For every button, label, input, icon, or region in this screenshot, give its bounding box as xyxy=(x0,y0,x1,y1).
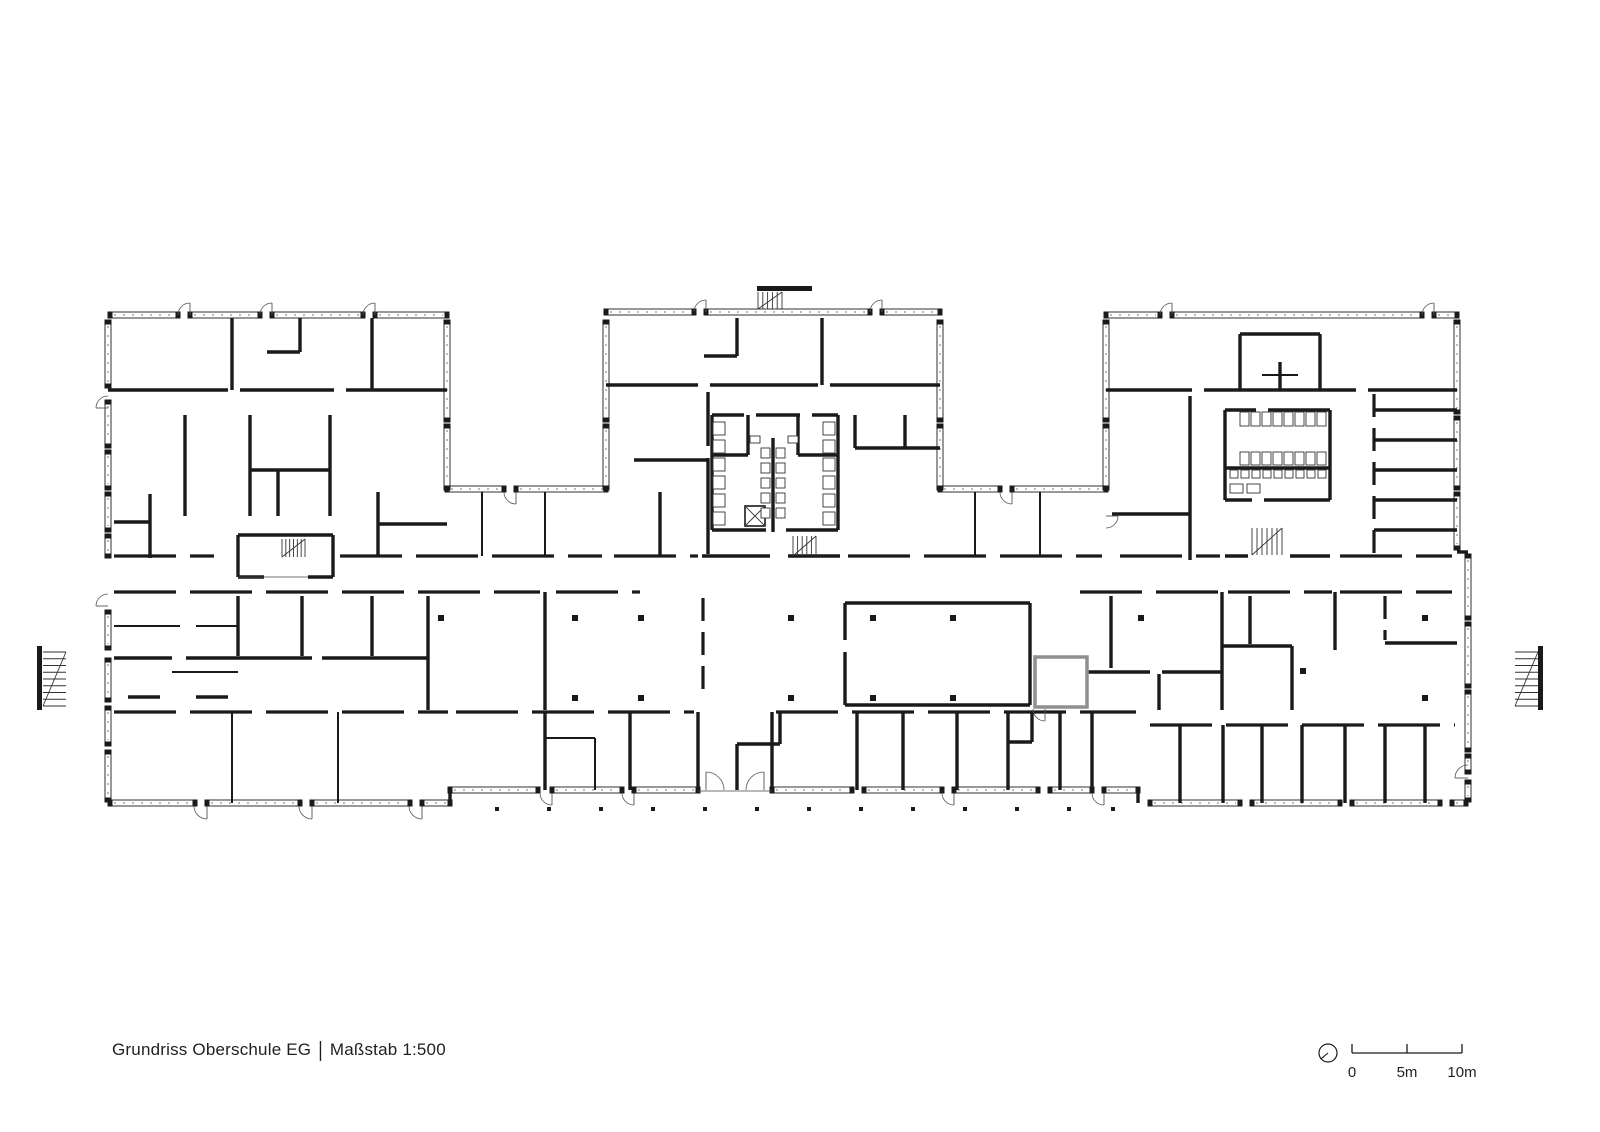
facade-pier xyxy=(105,646,112,651)
title-block: Grundriss Oberschule EG|Maßstab 1:500 xyxy=(112,1040,446,1060)
window-band xyxy=(1434,312,1457,318)
facade-pier xyxy=(105,384,112,389)
facade-pier xyxy=(514,486,519,493)
window-band xyxy=(110,312,178,318)
door-swing-arc xyxy=(746,772,764,790)
wc-fixture xyxy=(1241,470,1249,478)
column xyxy=(1138,615,1144,621)
wc-fixture xyxy=(750,436,760,443)
facade-pier xyxy=(620,787,625,794)
column xyxy=(572,695,578,701)
wc-fixture xyxy=(776,463,785,473)
wc-fixture xyxy=(776,508,785,518)
drawing-title: Grundriss Oberschule EG xyxy=(112,1040,311,1059)
wc-fixture xyxy=(761,493,770,503)
floor-plan-drawing xyxy=(0,0,1600,1132)
wc-fixture xyxy=(713,422,725,435)
window-band xyxy=(110,800,195,806)
facade-pier xyxy=(502,486,507,493)
column xyxy=(638,615,644,621)
facade-pier xyxy=(105,492,112,497)
facade-pier xyxy=(1465,780,1472,785)
wc-fixture xyxy=(776,448,785,458)
facade-pier xyxy=(108,312,113,319)
wc-fixture xyxy=(713,476,725,489)
facade-pier xyxy=(105,400,112,405)
facade-pier xyxy=(1465,616,1472,621)
facade-pier xyxy=(105,534,112,539)
wc-fixture xyxy=(1318,470,1326,478)
wc-fixture xyxy=(1284,452,1293,465)
wc-fixture xyxy=(761,448,770,458)
window-band xyxy=(1454,494,1460,548)
wc-fixture xyxy=(1317,452,1326,465)
column xyxy=(438,615,444,621)
facade-pier xyxy=(603,320,610,325)
facade-pier xyxy=(850,787,855,794)
wc-fixture xyxy=(1247,484,1260,493)
canopy-column xyxy=(495,807,499,811)
facade-pier xyxy=(1010,486,1015,493)
facade-pier xyxy=(1438,800,1443,807)
wc-fixture xyxy=(1262,452,1271,465)
wc-fixture xyxy=(1240,452,1249,465)
scale-label-10m: 10m xyxy=(1447,1064,1476,1081)
wc-fixture xyxy=(1296,470,1304,478)
facade-pier xyxy=(444,424,451,429)
facade-pier xyxy=(1048,787,1053,794)
facade-pier xyxy=(105,444,112,449)
wc-fixture xyxy=(761,463,770,473)
facade-pier xyxy=(1250,800,1255,807)
canopy-column xyxy=(963,807,967,811)
facade-pier xyxy=(1454,416,1461,421)
wc-fixture xyxy=(1230,470,1238,478)
wc-fixture xyxy=(713,512,725,525)
door-swing-arc xyxy=(1092,793,1104,805)
door-swing-arc xyxy=(1000,492,1012,504)
door-swing-arc xyxy=(622,793,634,805)
window-band xyxy=(447,486,504,492)
facade-pier xyxy=(603,486,610,491)
wc-fixture xyxy=(761,508,770,518)
facade-pier xyxy=(1465,684,1472,689)
door-swing-arc xyxy=(1106,516,1118,528)
column xyxy=(950,615,956,621)
wc-fixture xyxy=(776,478,785,488)
facade-pier xyxy=(632,787,637,794)
floor-plan-page: Grundriss Oberschule EG|Maßstab 1:500 0 … xyxy=(0,0,1600,1132)
canopy-column xyxy=(1015,807,1019,811)
wc-fixture xyxy=(823,512,835,525)
canopy-column xyxy=(1067,807,1071,811)
column xyxy=(1422,615,1428,621)
window-band xyxy=(1050,787,1092,793)
facade-pier xyxy=(1454,492,1461,497)
facade-pier xyxy=(1465,554,1472,559)
facade-pier xyxy=(105,450,112,455)
wc-fixture xyxy=(823,476,835,489)
wc-fixture xyxy=(823,458,835,471)
facade-pier xyxy=(1454,486,1461,491)
column xyxy=(572,615,578,621)
wc-fixture xyxy=(1306,452,1315,465)
stair-landing-bar xyxy=(757,286,812,291)
facade-pier xyxy=(1455,312,1460,319)
wc-fixture xyxy=(713,494,725,507)
door-swing-arc xyxy=(194,806,207,819)
facade-pier xyxy=(105,698,112,703)
wc-fixture xyxy=(1306,412,1315,426)
facade-pier xyxy=(105,798,112,803)
facade-pier xyxy=(1338,800,1343,807)
facade-pier xyxy=(550,787,555,794)
facade-pier xyxy=(603,424,610,429)
wc-fixture xyxy=(1285,470,1293,478)
scale-label-0: 0 xyxy=(1348,1064,1356,1081)
canopy-column xyxy=(651,807,655,811)
facade-pier xyxy=(1465,690,1472,695)
wall-layer xyxy=(108,318,1468,806)
facade-pier xyxy=(1350,800,1355,807)
facade-pier xyxy=(1102,787,1107,794)
stair-diagonal xyxy=(793,536,816,556)
wc-fixture xyxy=(1273,412,1282,426)
facade-pier xyxy=(105,486,112,491)
canopy-column xyxy=(547,807,551,811)
facade-pier xyxy=(940,787,945,794)
canopy-column xyxy=(859,807,863,811)
facade-pier xyxy=(937,418,944,423)
facade-pier xyxy=(1454,320,1461,325)
canopy-column xyxy=(703,807,707,811)
facade-pier xyxy=(420,800,425,807)
canopy-column xyxy=(911,807,915,811)
facade-pier xyxy=(1465,622,1472,627)
facade-pier xyxy=(444,320,451,325)
facade-pier xyxy=(105,320,112,325)
facade-pier xyxy=(1465,770,1472,775)
window-band xyxy=(1106,312,1160,318)
stair-landing-bar xyxy=(1538,646,1543,710)
facade-pier xyxy=(105,554,112,559)
facade-pier xyxy=(1103,320,1110,325)
facade-pier xyxy=(1465,754,1472,759)
facade-pier xyxy=(445,312,450,319)
door-swing-arc xyxy=(96,594,108,606)
facade-pier xyxy=(105,742,112,747)
title-separator: | xyxy=(318,1038,323,1063)
column xyxy=(870,695,876,701)
facade-pier xyxy=(105,528,112,533)
canopy-column xyxy=(599,807,603,811)
door-swing-arc xyxy=(942,793,954,805)
wc-fixture xyxy=(1251,412,1260,426)
facade-pier xyxy=(938,309,943,316)
column xyxy=(638,695,644,701)
column xyxy=(1300,668,1306,674)
wc-fixture xyxy=(1240,412,1249,426)
wc-fixture xyxy=(1284,412,1293,426)
facade-pier xyxy=(1465,798,1472,803)
wc-fixture xyxy=(1273,452,1282,465)
facade-pier xyxy=(604,309,609,316)
wc-fixture xyxy=(1295,412,1304,426)
facade-pier xyxy=(1103,424,1110,429)
window-band xyxy=(1465,782,1471,800)
facade-pier xyxy=(1103,486,1110,491)
highlighted-room xyxy=(1035,657,1087,707)
facade-pier xyxy=(937,486,944,491)
wc-fixture xyxy=(1230,484,1243,493)
scale-label-5m: 5m xyxy=(1397,1064,1418,1081)
window-band xyxy=(375,312,447,318)
column xyxy=(950,695,956,701)
facade-pier xyxy=(1036,787,1041,794)
facade-pier xyxy=(1238,800,1243,807)
facade-pier xyxy=(998,486,1003,493)
wc-fixture xyxy=(823,422,835,435)
facade-pier xyxy=(105,706,112,711)
door-swing-arc xyxy=(409,806,422,819)
drawing-scale-text: Maßstab 1:500 xyxy=(330,1040,446,1059)
scale-bar xyxy=(1319,1044,1462,1062)
column xyxy=(788,695,794,701)
facade-pier xyxy=(1465,748,1472,753)
wc-fixture xyxy=(823,440,835,453)
wc-fixture xyxy=(1307,470,1315,478)
stair-diagonal xyxy=(758,292,782,309)
wc-fixture xyxy=(788,436,798,443)
canopy-column xyxy=(1111,807,1115,811)
wc-fixture xyxy=(1263,470,1271,478)
column xyxy=(788,615,794,621)
facade-pier xyxy=(1104,312,1109,319)
door-swing-arc xyxy=(504,492,516,504)
wc-fixture xyxy=(1317,412,1326,426)
wc-fixture xyxy=(823,494,835,507)
column xyxy=(870,615,876,621)
wc-fixture xyxy=(1274,470,1282,478)
facade-pier xyxy=(444,486,451,491)
wc-fixture xyxy=(776,493,785,503)
facade-pier xyxy=(536,787,541,794)
facade-pier xyxy=(105,750,112,755)
wc-fixture xyxy=(713,458,725,471)
facade-pier xyxy=(408,800,413,807)
facade-pier xyxy=(105,610,112,615)
wc-fixture xyxy=(1251,452,1260,465)
facade-pier xyxy=(1148,800,1153,807)
canopy-column xyxy=(755,807,759,811)
facade-pier xyxy=(937,320,944,325)
door-swing-arc xyxy=(540,793,552,805)
facade-pier xyxy=(444,418,451,423)
facade-pier xyxy=(1450,800,1455,807)
wc-fixture xyxy=(713,440,725,453)
facade-pier xyxy=(310,800,315,807)
facade-pier xyxy=(1454,546,1461,551)
stair-landing-bar xyxy=(37,646,42,710)
door-swing-arc xyxy=(299,806,312,819)
wc-fixture xyxy=(1295,452,1304,465)
window-band xyxy=(105,536,111,556)
facade-pier xyxy=(193,800,198,807)
wc-fixture xyxy=(1252,470,1260,478)
facade-pier xyxy=(862,787,867,794)
facade-pier xyxy=(105,658,112,663)
column xyxy=(1422,695,1428,701)
stair-layer xyxy=(37,286,1543,710)
facade-pier xyxy=(298,800,303,807)
wc-fixture xyxy=(1262,412,1271,426)
facade-pier xyxy=(1103,418,1110,423)
facade-pier xyxy=(937,424,944,429)
facade-pier xyxy=(603,418,610,423)
wc-fixture xyxy=(761,478,770,488)
canopy-column xyxy=(807,807,811,811)
door-swing-arc xyxy=(706,772,724,790)
facade-pier xyxy=(205,800,210,807)
